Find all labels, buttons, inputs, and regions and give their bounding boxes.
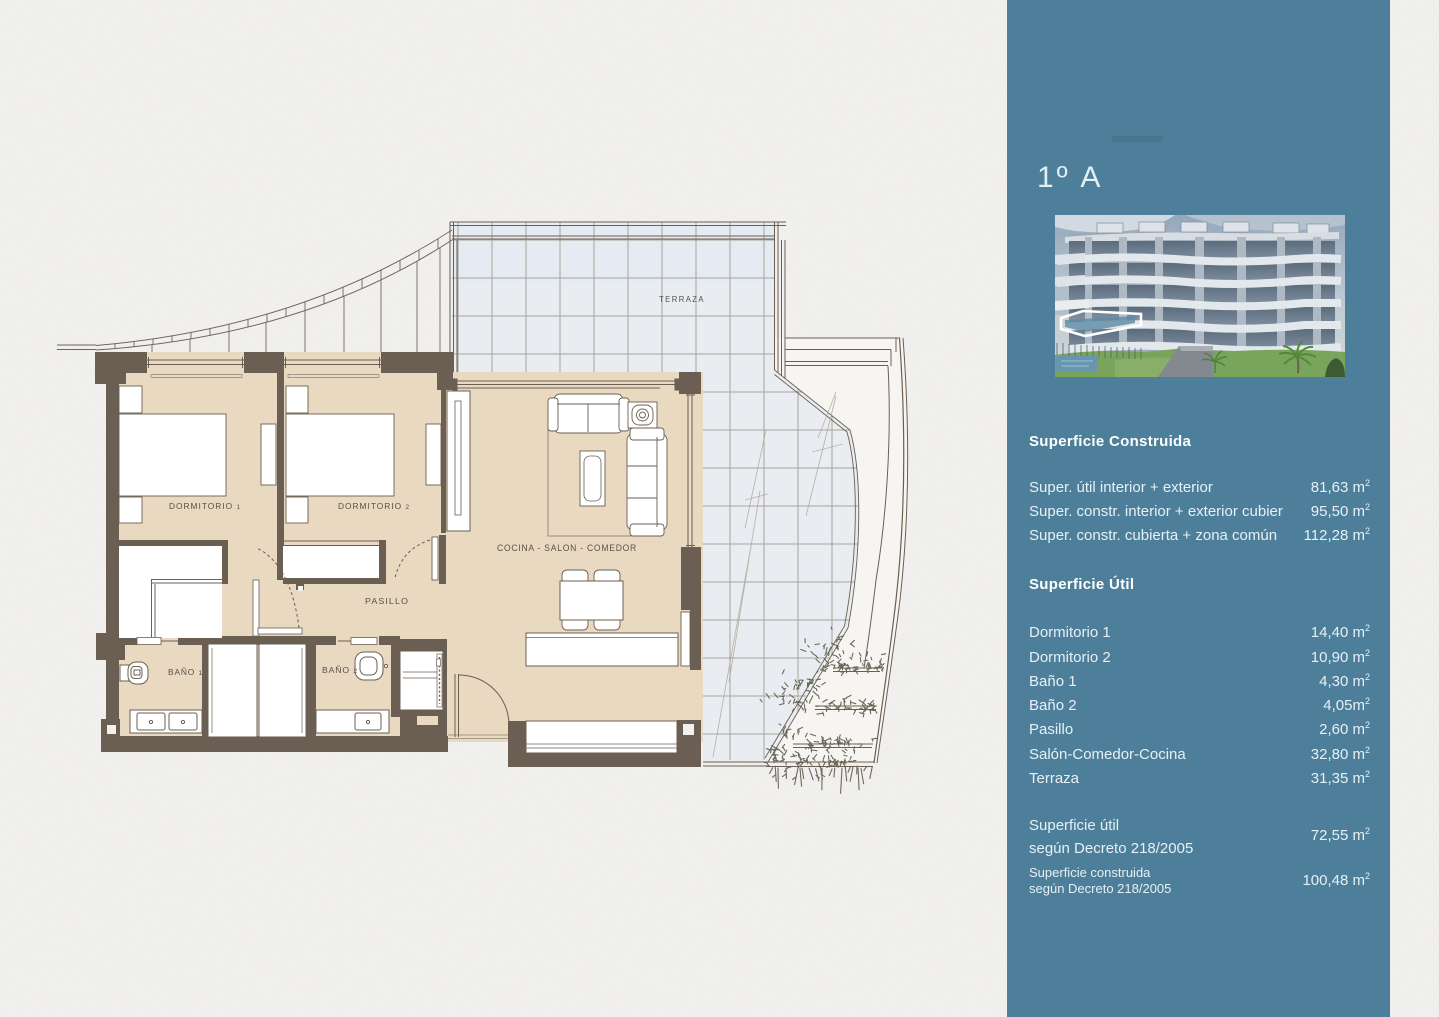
svg-text:COCINA - SALON - COMEDOR: COCINA - SALON - COMEDOR xyxy=(497,543,637,553)
svg-text:BAÑO 1: BAÑO 1 xyxy=(168,668,203,677)
svg-text:TERRAZA: TERRAZA xyxy=(659,294,705,304)
svg-text:PASILLO: PASILLO xyxy=(365,596,409,606)
svg-text:DORMITORIO 2: DORMITORIO 2 xyxy=(338,501,410,511)
svg-text:DORMITORIO 1: DORMITORIO 1 xyxy=(169,501,241,511)
svg-text:BAÑO 2: BAÑO 2 xyxy=(322,666,358,675)
